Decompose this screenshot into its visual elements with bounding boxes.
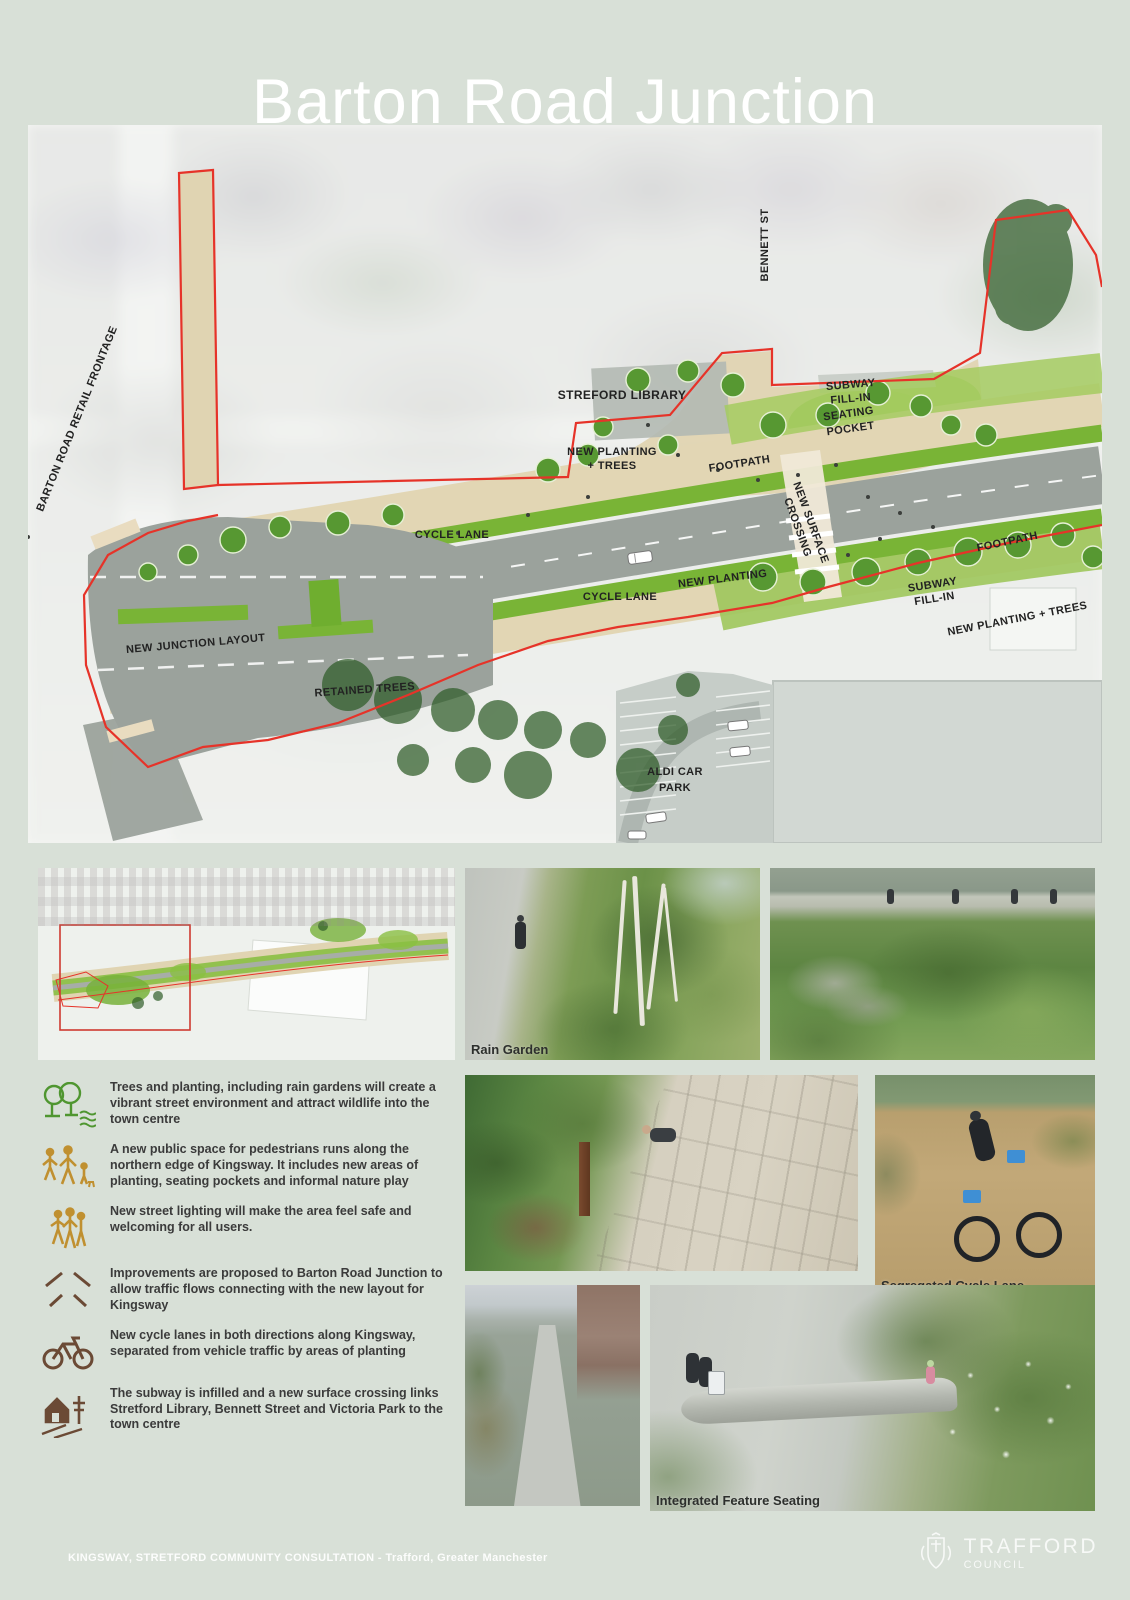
timber-marker-post — [579, 1142, 590, 1216]
footer-project-line: KINGSWAY, STRETFORD COMMUNITY CONSULTATI… — [68, 1552, 548, 1564]
council-name: TRAFFORD — [964, 1536, 1098, 1557]
main-plan-panel: BARTON ROAD RETAIL FRONTAGE BENNETT ST S… — [28, 125, 1102, 843]
svg-text:CYCLE LANE: CYCLE LANE — [583, 591, 657, 603]
junction-icon — [38, 1266, 98, 1312]
bullet-text: New cycle lanes in both directions along… — [110, 1328, 462, 1360]
overview-minimap — [38, 868, 455, 1060]
subway-crossing-icon — [38, 1386, 98, 1438]
svg-text:NEW PLANTING: NEW PLANTING — [567, 446, 657, 458]
council-dept: COUNCIL — [964, 1559, 1098, 1571]
svg-text:PARK: PARK — [659, 782, 691, 794]
brick-building — [577, 1285, 640, 1400]
pedestrian-figure — [952, 889, 959, 904]
list-item: New cycle lanes in both directions along… — [38, 1328, 462, 1372]
blue-pannier — [963, 1190, 981, 1203]
birch-trunk — [632, 876, 645, 1026]
list-item: New street lighting will make the area f… — [38, 1204, 462, 1252]
bullet-text: Trees and planting, including rain garde… — [110, 1080, 462, 1128]
list-item: A new public space for pedestrians runs … — [38, 1142, 462, 1190]
bullet-text: The subway is infilled and a new surface… — [110, 1386, 462, 1434]
birch-trunk — [614, 880, 627, 1014]
list-item: Improvements are proposed to Barton Road… — [38, 1266, 462, 1314]
cyclist-figure — [967, 1117, 997, 1163]
photo-park-planting — [770, 868, 1095, 1060]
trees-icon — [38, 1080, 98, 1128]
photo-boardwalk-planting — [465, 1075, 858, 1271]
council-logo: TRAFFORD COUNCIL — [918, 1532, 1098, 1574]
photo-caption: Integrated Feature Seating — [656, 1493, 820, 1508]
svg-text:CYCLE LANE: CYCLE LANE — [415, 529, 489, 541]
list-item: Trees and planting, including rain garde… — [38, 1080, 462, 1128]
footway — [514, 1325, 581, 1506]
birch-trunk — [646, 884, 665, 1010]
bullet-text: Improvements are proposed to Barton Road… — [110, 1266, 462, 1314]
photo-caption: Rain Garden — [471, 1042, 548, 1057]
photo-segregated-cycle-lane: Segregated Cycle Lane — [875, 1075, 1095, 1296]
list-item: The subway is infilled and a new surface… — [38, 1386, 462, 1438]
paving-texture — [465, 1075, 858, 1271]
street-lighting-icon — [38, 1204, 98, 1252]
photo-rain-garden: Rain Garden — [465, 868, 760, 1060]
plan-drawing: BARTON ROAD RETAIL FRONTAGE BENNETT ST S… — [28, 125, 1102, 843]
bullet-text: New street lighting will make the area f… — [110, 1204, 462, 1236]
seated-person — [686, 1353, 699, 1383]
bike-wheel — [1016, 1212, 1062, 1258]
pedestrians-icon — [38, 1142, 98, 1190]
cycle-icon — [38, 1328, 98, 1372]
pedestrian-figure — [515, 922, 526, 949]
photo-integrated-seating: Integrated Feature Seating — [650, 1285, 1095, 1511]
council-wordmark: TRAFFORD COUNCIL — [964, 1536, 1098, 1571]
birch-trunk — [663, 887, 678, 1002]
label-bennett-st: BENNETT ST — [759, 208, 771, 281]
suitcase — [708, 1371, 725, 1395]
retail-frontage-strip — [179, 170, 218, 489]
bullet-text: A new public space for pedestrians runs … — [110, 1142, 462, 1190]
label-barton-frontage: BARTON ROAD RETAIL FRONTAGE — [34, 324, 120, 513]
blue-pannier — [1007, 1150, 1025, 1163]
council-crest-icon — [918, 1532, 954, 1574]
pedestrian-figure — [1050, 889, 1057, 904]
svg-text:ALDI CAR: ALDI CAR — [647, 766, 703, 778]
key-points-list: Trees and planting, including rain garde… — [38, 1080, 462, 1452]
aldi-car-park-area — [616, 588, 1102, 843]
photo-street-path — [465, 1285, 640, 1506]
poster: Barton Road Junction — [0, 0, 1130, 1600]
pedestrian-figure — [887, 889, 894, 904]
svg-text:+ TREES: + TREES — [588, 460, 637, 472]
pedestrian-figure — [1011, 889, 1018, 904]
minimap-housing-texture — [38, 868, 455, 926]
seated-person — [650, 1128, 676, 1142]
child-figure — [926, 1366, 935, 1384]
bike-wheel — [954, 1216, 1000, 1262]
label-stretford-library: STREFORD LIBRARY — [558, 388, 687, 402]
